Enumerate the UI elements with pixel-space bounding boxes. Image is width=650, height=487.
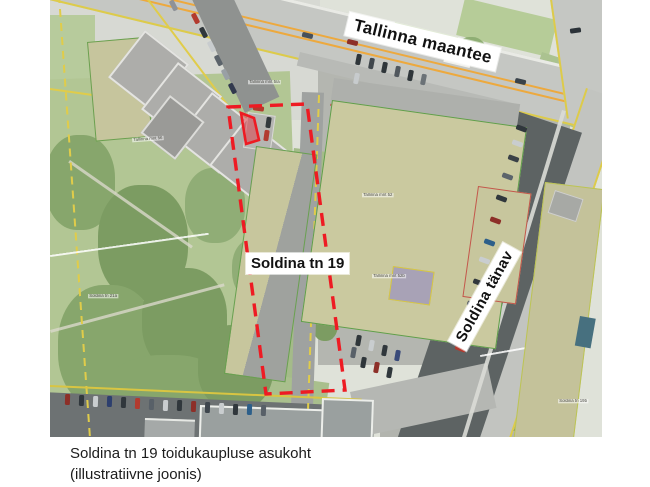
parked-car: [373, 362, 380, 374]
aerial-map: Tallinna maantee Soldina tn 19 Soldina t…: [50, 0, 602, 437]
parked-car: [149, 399, 154, 410]
building-bottom: [144, 418, 195, 437]
parcel-label: Tallinna mnt 52: [362, 193, 394, 197]
parked-car: [163, 400, 168, 411]
parcel-label: Soldina tn 21a: [88, 294, 118, 298]
building-bottom: [320, 398, 374, 437]
parked-car: [79, 395, 84, 406]
parked-car: [233, 404, 238, 415]
caption-line-1: Soldina tn 19 toidukaupluse asukoht: [70, 443, 311, 464]
caption-line-2: (illustratiivne joonis): [70, 464, 311, 485]
parked-car: [107, 396, 112, 407]
parked-car: [93, 396, 98, 407]
parked-car: [247, 404, 252, 415]
parked-car: [177, 400, 182, 411]
parked-car: [261, 405, 266, 416]
parked-car: [135, 398, 140, 409]
parked-car: [360, 357, 367, 369]
parked-car: [191, 401, 196, 412]
parked-car: [205, 402, 210, 413]
page: Tallinna maantee Soldina tn 19 Soldina t…: [0, 0, 650, 487]
parked-car: [386, 367, 393, 379]
parcel-label: Tallinna mnt 5/a: [248, 80, 281, 84]
parked-car: [65, 394, 70, 405]
figure-caption: Soldina tn 19 toidukaupluse asukoht (ill…: [70, 443, 311, 485]
parked-car: [121, 397, 126, 408]
parcel-purple: [388, 266, 434, 306]
site-label-soldina-tn-19: Soldina tn 19: [246, 253, 349, 274]
parcel-label: Tallinna mnt 52b: [372, 274, 406, 278]
parked-car: [219, 403, 224, 414]
parcel-label: Soldina tn 19b: [558, 399, 588, 403]
